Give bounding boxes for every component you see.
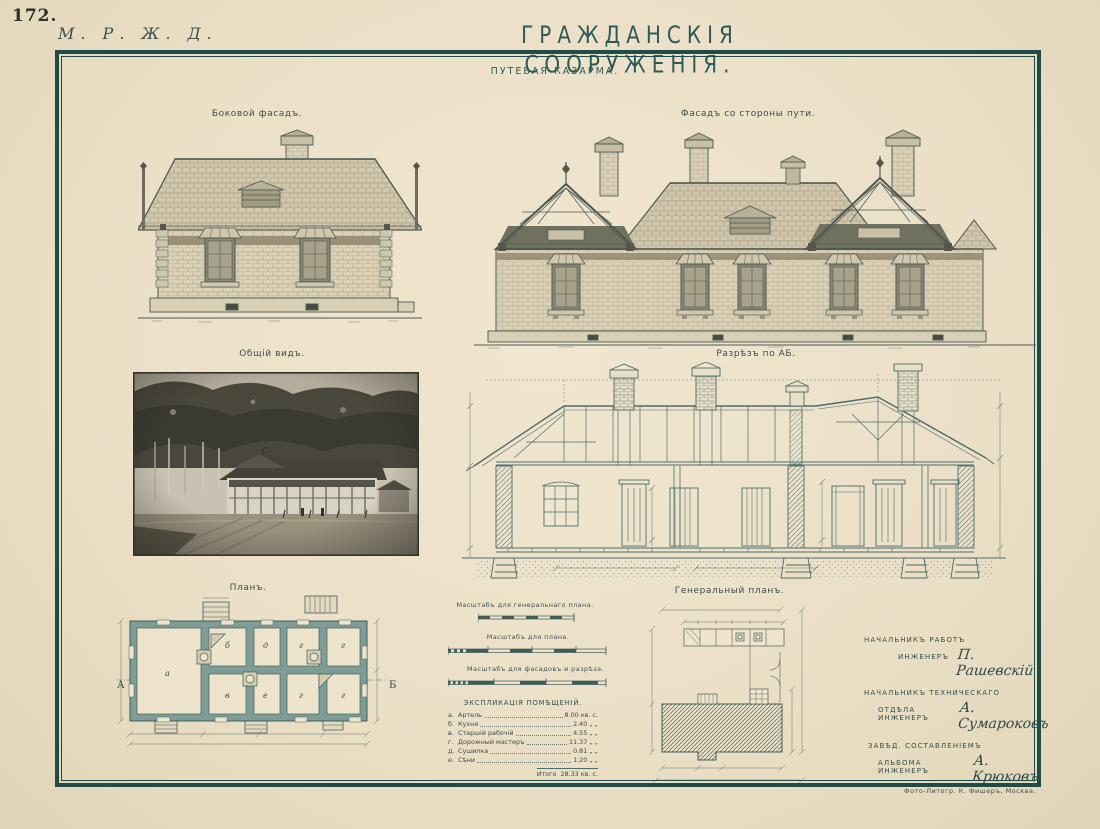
- room-letter: е: [263, 691, 268, 700]
- room-name-cell: Сушилка: [458, 747, 488, 756]
- room-area-cell: 1.20 „ „: [573, 756, 598, 765]
- plan-marker-a: А: [117, 680, 125, 691]
- signature-name: А. Сумароковъ: [957, 700, 1051, 732]
- signature-title: ИНЖЕНЕРЪ: [898, 653, 949, 661]
- explication-row: а. Артель 8.00 кв. с.: [448, 711, 598, 720]
- room-letter: г: [299, 691, 303, 700]
- interior-window: [542, 482, 580, 526]
- dotted-leader: [516, 735, 572, 736]
- plan-label: Планъ.: [200, 583, 296, 593]
- general-view-label: Общій видъ.: [202, 349, 342, 359]
- room-letter: г: [341, 691, 345, 700]
- room-letter-cell: е.: [448, 756, 458, 765]
- railway-abbreviation: М. Р. Ж. Д.: [58, 24, 218, 43]
- general-plan-label: Генеральный планъ.: [652, 586, 807, 596]
- signature-dept: НАЧАЛЬНИКЪ ТЕХНИЧЕСКАГО: [864, 689, 1049, 697]
- scale-bar-general-plan: [478, 613, 578, 623]
- dotted-leader: [477, 762, 571, 763]
- explication-row: б. Кухня 2.40 „ „: [448, 720, 598, 729]
- room-letter: в: [225, 691, 230, 700]
- signature-dept: НАЧАЛЬНИКЪ РАБОТЪ: [864, 636, 1049, 644]
- signature-dept: ЗАВѢД. СОСТАВЛЕНІЕМЪ: [868, 742, 1049, 750]
- signature-block: НАЧАЛЬНИКЪ РАБОТЪ ИНЖЕНЕРЪ П. Рашевскій …: [864, 636, 1049, 795]
- general-view-photo: [133, 372, 419, 556]
- signature-group: НАЧАЛЬНИКЪ РАБОТЪ ИНЖЕНЕРЪ П. Рашевскій: [864, 636, 1049, 679]
- window: [294, 228, 336, 287]
- room-area-cell: 8.00 кв. с.: [565, 711, 599, 720]
- chimney-stacks: [610, 362, 922, 466]
- explication-row: в. Старшій рабочій 4.55 „ „: [448, 729, 598, 738]
- signature-title: АЛЬБОМА ИНЖЕНЕРЪ: [878, 759, 965, 775]
- scale-title-facades: Масштабъ для фасадовъ и разрѣза.: [448, 665, 623, 673]
- front-facade-label: Фасадъ со стороны пути.: [648, 109, 848, 119]
- plinth: [488, 331, 986, 342]
- plate-subtitle: ПУТЕВАЯ КАЗАРМА.: [455, 66, 655, 77]
- signature-name: А. Крюковъ: [971, 753, 1050, 785]
- gate-swing: [770, 652, 780, 702]
- room-letter-cell: д.: [448, 747, 458, 756]
- plinth: [150, 298, 414, 312]
- plan-drawing: А Б а б в д е г г г г: [115, 594, 400, 756]
- building-footprint: [662, 689, 782, 760]
- signature-group: ЗАВѢД. СОСТАВЛЕНІЕМЪ АЛЬБОМА ИНЖЕНЕРЪ А.…: [864, 742, 1049, 785]
- signature-group: НАЧАЛЬНИКЪ ТЕХНИЧЕСКАГО ОТДѢЛА ИНЖЕНЕРЪ …: [864, 689, 1049, 732]
- signature-name: П. Рашевскій: [955, 647, 1050, 679]
- dotted-leader: [490, 753, 571, 754]
- dotted-leader: [480, 726, 571, 727]
- total-label: Итого: [537, 770, 557, 778]
- room-area-cell: 2.40 „ „: [573, 720, 598, 729]
- outbuildings-row: [684, 629, 784, 646]
- explication-row: г. Дорожный мастеръ 11.37 „ „: [448, 738, 598, 747]
- section-label: Разрѣзъ по АБ.: [676, 349, 836, 359]
- room-area-cell: 4.55 „ „: [573, 729, 598, 738]
- section-drawing: [456, 362, 1012, 582]
- dotted-leader: [484, 717, 563, 718]
- scale-bar-facades: [448, 677, 610, 688]
- floor: [496, 548, 974, 552]
- general-plan-drawing: [646, 602, 812, 788]
- explication-total-row: Итого 28.33 кв. с.: [448, 767, 598, 778]
- room-letter: г: [299, 641, 303, 650]
- room-letter-cell: г.: [448, 738, 458, 747]
- scale-bar-plan: [448, 645, 610, 656]
- scale-title-general-plan: Масштабъ для генеральнаго плана.: [455, 601, 595, 609]
- explication-row: д. Сушилка 0.81 „ „: [448, 747, 598, 756]
- page-number: 172.: [12, 6, 57, 26]
- room-letter: г: [341, 641, 345, 650]
- room-area-cell: 0.81 „ „: [573, 747, 598, 756]
- explication-row: е. Сѣни 1.20 „ „: [448, 756, 598, 765]
- ground: [138, 318, 422, 322]
- room-area-cell: 11.37 „ „: [569, 738, 598, 747]
- dotted-leader: [527, 744, 568, 745]
- explication-table: ЭКСПЛИКАЦІЯ ПОМѢЩЕНІЙ. а. Артель 8.00 кв…: [448, 699, 598, 778]
- room-letter: б: [225, 641, 230, 650]
- room-name-cell: Дорожный мастеръ: [458, 738, 525, 747]
- room-letter-cell: в.: [448, 729, 458, 738]
- room-letter: а: [165, 669, 170, 678]
- total-value: 28.33 кв. с.: [560, 770, 598, 778]
- room-name-cell: Старшій рабочій: [458, 729, 514, 738]
- side-facade-drawing: [138, 128, 422, 332]
- front-facade-drawing: [468, 126, 1043, 350]
- room-letter: д: [263, 641, 268, 650]
- room-name-cell: Сѣни: [458, 756, 475, 765]
- scale-title-plan: Масштабъ для плана.: [448, 633, 608, 641]
- ground: [474, 345, 1036, 348]
- dimension-lines: [467, 374, 1003, 571]
- room-name-cell: Кухня: [458, 720, 478, 729]
- room-letter-cell: а.: [448, 711, 458, 720]
- signature-title: ОТДѢЛА ИНЖЕНЕРЪ: [878, 706, 951, 722]
- side-facade-label: Боковой фасадъ.: [172, 109, 342, 119]
- window: [199, 228, 241, 287]
- room-letter-cell: б.: [448, 720, 458, 729]
- plan-marker-b: Б: [389, 680, 396, 691]
- room-name-cell: Артель: [458, 711, 482, 720]
- explication-title: ЭКСПЛИКАЦІЯ ПОМѢЩЕНІЙ.: [448, 699, 598, 708]
- lithographer-credit: Фото-Литогр. К. Фишеръ, Москва.: [855, 787, 1085, 795]
- wall: [156, 224, 392, 298]
- album-page: 172. М. Р. Ж. Д. ГРАЖДАНСКІЯ СООРУЖЕНІЯ.…: [0, 0, 1100, 829]
